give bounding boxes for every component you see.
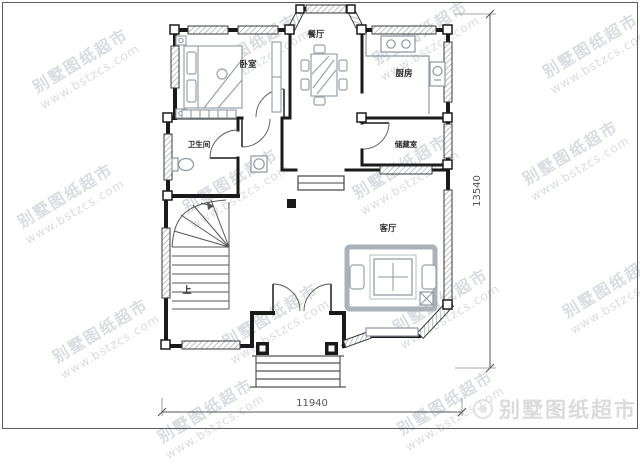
image-border xyxy=(2,2,638,429)
